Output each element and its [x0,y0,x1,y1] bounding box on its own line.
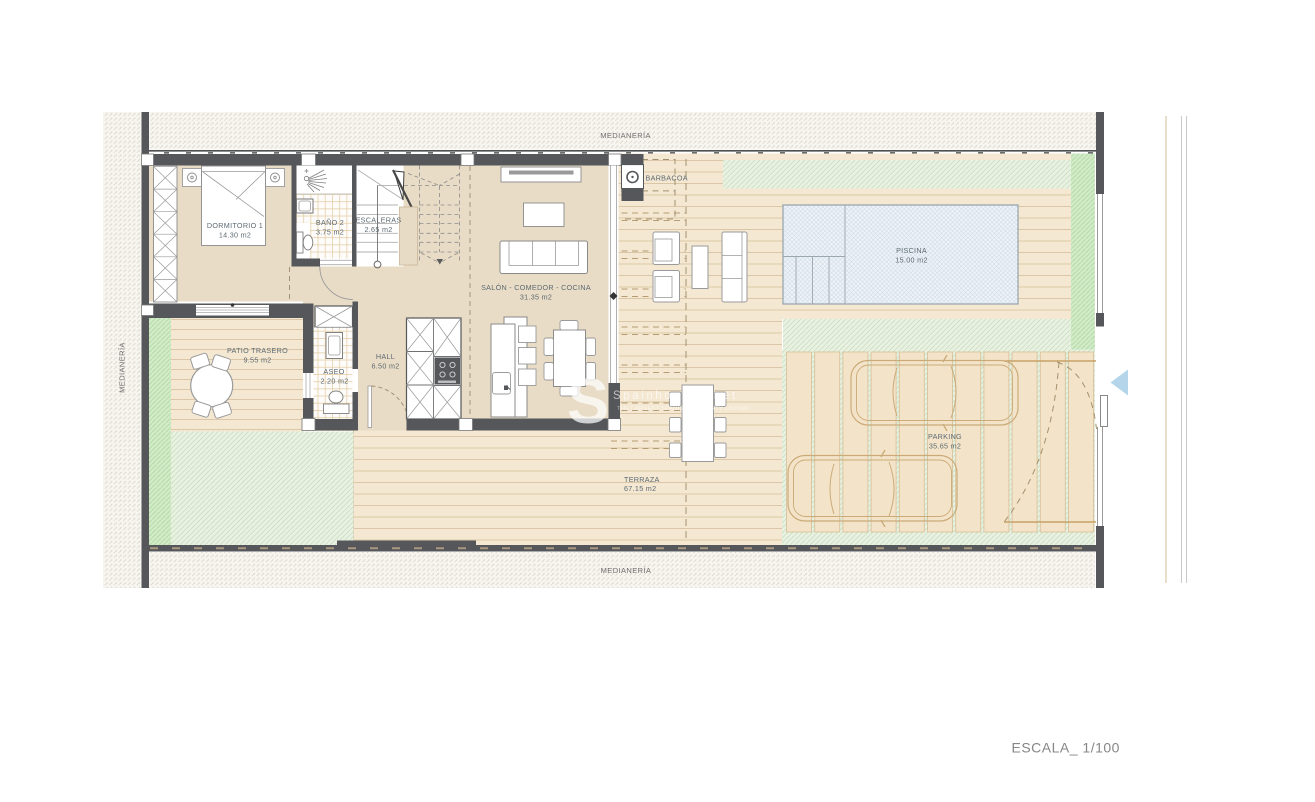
svg-text:DORMITORIO 1: DORMITORIO 1 [207,221,263,230]
svg-text:TERRAZA: TERRAZA [624,475,660,484]
svg-text:PARKING: PARKING [928,432,962,441]
svg-text:67.15 m2: 67.15 m2 [624,484,656,493]
svg-text:Spainhouses.net: Spainhouses.net [613,390,738,402]
svg-text:ESCALA_ 1/100: ESCALA_ 1/100 [1012,740,1120,756]
svg-text:MEDIANERÍA: MEDIANERÍA [601,566,652,575]
svg-text:14.30 m2: 14.30 m2 [219,231,251,240]
svg-text:MEDIANERÍA: MEDIANERÍA [600,131,651,140]
svg-text:HALL: HALL [376,352,395,361]
svg-text:2.65 m2: 2.65 m2 [364,225,392,234]
svg-text:S: S [567,367,609,437]
svg-text:PATIO TRASERO: PATIO TRASERO [227,346,288,355]
svg-text:9.55 m2: 9.55 m2 [243,356,271,365]
svg-text:15.00 m2: 15.00 m2 [895,256,927,265]
svg-text:PISCINA: PISCINA [896,246,927,255]
svg-text:6.50 m2: 6.50 m2 [371,362,399,371]
svg-text:THE LARGEST SPANISH PROPERTY L: THE LARGEST SPANISH PROPERTY LISTING [617,406,749,412]
svg-text:35.65 m2: 35.65 m2 [929,442,961,451]
svg-text:SALÓN - COMEDOR - COCINA: SALÓN - COMEDOR - COCINA [481,283,591,292]
svg-text:BAÑO 2: BAÑO 2 [316,218,344,227]
svg-text:ESCALERAS: ESCALERAS [356,216,402,225]
svg-text:2.20 m2: 2.20 m2 [320,377,348,386]
svg-text:BARBACOA: BARBACOA [646,174,688,183]
svg-text:31.35 m2: 31.35 m2 [520,293,552,302]
svg-text:3.75 m2: 3.75 m2 [316,228,344,237]
svg-text:MEDIANERÍA: MEDIANERÍA [118,342,127,393]
svg-text:ASEO: ASEO [323,367,344,376]
